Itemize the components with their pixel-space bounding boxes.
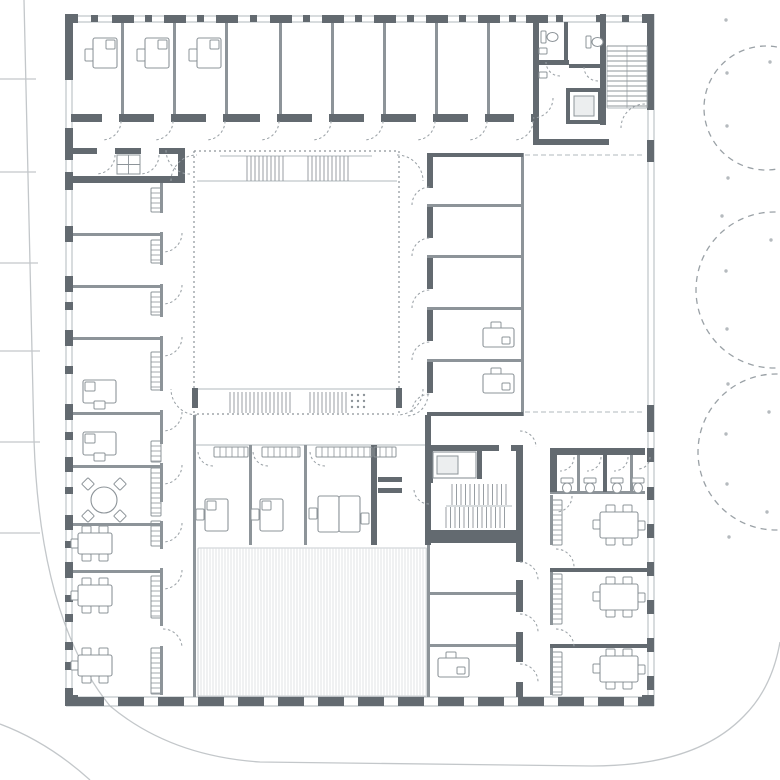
hatched-floor [198, 548, 427, 696]
floor-plan-svg [0, 0, 780, 780]
tree-icons [696, 18, 780, 538]
dot-markers [351, 394, 365, 408]
window-wall [78, 697, 642, 706]
furniture-symbols [71, 31, 645, 689]
floor-plan [0, 0, 780, 780]
structural-walls [65, 14, 654, 706]
